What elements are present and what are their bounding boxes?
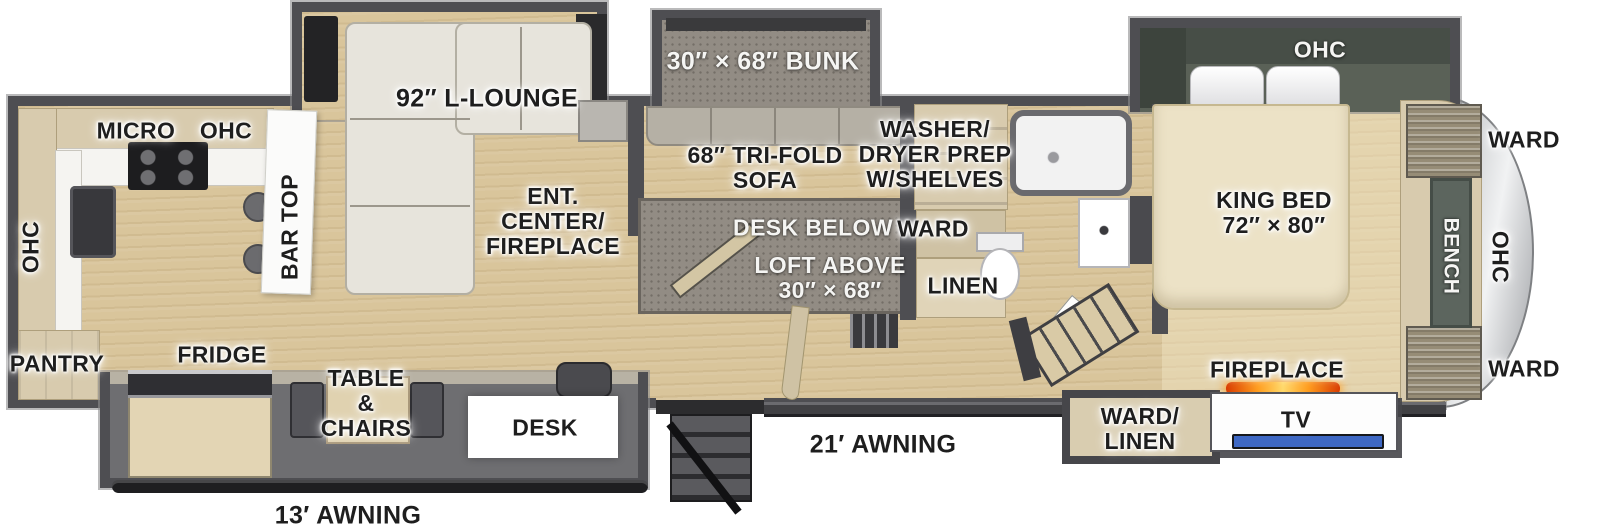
sofa-seam [520,27,522,130]
label-desk-below: DESK BELOW [733,216,893,241]
label-ohc-front: OHC [1488,231,1513,283]
label-ward-front-top: WARD [1488,128,1560,153]
front-ward-top [1406,104,1482,178]
dinette-chair [410,382,444,438]
label-tri-fold-sofa: 68″ TRI-FOLD SOFA [687,143,842,193]
label-awning-21: 21′ AWNING [810,432,957,459]
kitchen-sink [70,186,116,258]
bathroom-sink-vanity [1078,198,1130,268]
label-desk: DESK [512,416,578,441]
label-fireplace: FIREPLACE [1210,358,1344,383]
label-fridge: FRIDGE [177,343,266,368]
sofa-seam [350,205,470,207]
label-linen-mid: LINEN [928,274,999,299]
entry-threshold [656,400,764,414]
label-bunk: 30″ × 68″ BUNK [667,49,860,76]
fridge-top [128,370,272,398]
ent-center-cabinet [578,100,628,142]
stove-cooktop [128,142,208,190]
label-ohc-bedroom: OHC [1294,38,1346,63]
label-table-chairs: TABLE & CHAIRS [321,366,412,440]
label-ward-mid: WARD [897,217,969,242]
label-ohc-kitchen-left: OHC [19,221,44,273]
dinette-chair [290,382,324,438]
label-loft-above: LOFT ABOVE 30″ × 68″ [754,253,905,303]
lounge-window [304,16,338,102]
label-ward-linen: WARD/ LINEN [1101,404,1180,454]
label-tv: TV [1281,408,1311,433]
label-washer-dryer: WASHER/ DRYER PREP W/SHELVES [859,117,1012,191]
label-micro: MICRO [97,119,176,144]
label-awning-13: 13′ AWNING [275,503,422,529]
front-ward-bottom [1406,326,1482,400]
tv-screen [1232,434,1384,449]
bedroom-slide-cabinet [1140,28,1186,108]
label-king-bed: KING BED 72″ × 80″ [1216,188,1332,238]
label-pantry: PANTRY [10,352,104,377]
hall-ladder [850,314,898,348]
rv-floorplan: MICRO OHC OHC BAR TOP PANTRY FRIDGE 92″ … [0,0,1600,529]
label-l-lounge: 92″ L-LOUNGE [396,86,578,113]
sofa-seam [350,118,470,120]
label-ent-center: ENT. CENTER/ FIREPLACE [486,184,620,258]
label-bar-top: BAR TOP [278,174,303,280]
label-ohc-kitchen-top: OHC [200,119,252,144]
l-lounge-sofa-horizontal [455,22,592,135]
label-ward-front-bottom: WARD [1488,357,1560,382]
entry-steps [670,414,752,502]
awning-13-bar [112,480,648,493]
label-bench: BENCH [1439,218,1462,295]
desk-chair [556,362,612,398]
shower [1010,110,1132,196]
bunk-headboard [666,18,866,31]
